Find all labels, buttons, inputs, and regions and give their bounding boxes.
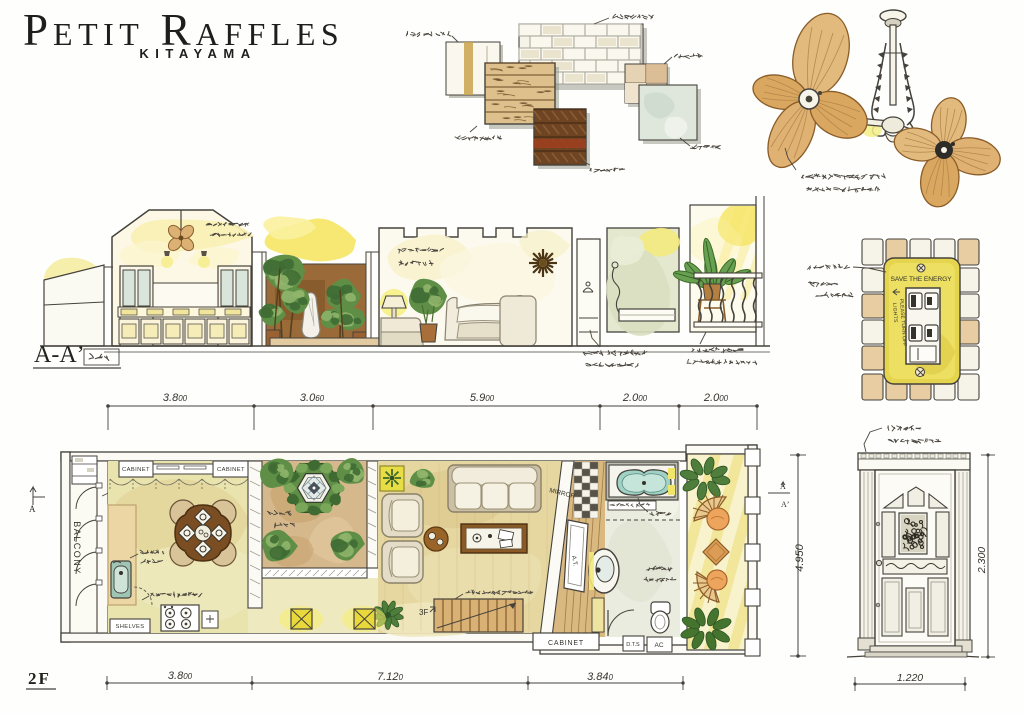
svg-text:A: A [780,482,786,491]
svg-text:3F: 3F [419,608,428,617]
svg-text:SHELVES: SHELVES [115,624,144,630]
svg-text:KITAYAMA: KITAYAMA [139,46,256,61]
svg-text:2.000: 2.000 [622,392,648,404]
svg-text:CABINET: CABINET [548,640,584,647]
svg-text:CABINET: CABINET [217,467,245,473]
svg-text:5.900: 5.900 [470,392,495,404]
svg-text:4.950: 4.950 [794,543,806,571]
svg-text:AC: AC [654,642,663,649]
svg-text:A-Aʼ: A-Aʼ [34,342,85,368]
svg-text:A: A [29,504,36,514]
svg-text:2.300: 2.300 [976,547,988,574]
svg-text:3.840: 3.840 [587,671,613,683]
svg-text:2F: 2F [28,669,51,688]
svg-text:2.000: 2.000 [703,392,729,404]
svg-text:D.T.S: D.T.S [626,642,640,648]
svg-text:Aʼ: Aʼ [781,500,789,509]
svg-text:7.120: 7.120 [377,671,403,683]
svg-text:CABINET: CABINET [122,467,150,473]
svg-text:3.800: 3.800 [168,670,193,682]
svg-text:3.060: 3.060 [300,392,325,404]
svg-text:1.220: 1.220 [897,672,923,684]
svg-text:SAVE THE ENERGY: SAVE THE ENERGY [890,276,952,283]
svg-text:3.800: 3.800 [163,392,188,404]
